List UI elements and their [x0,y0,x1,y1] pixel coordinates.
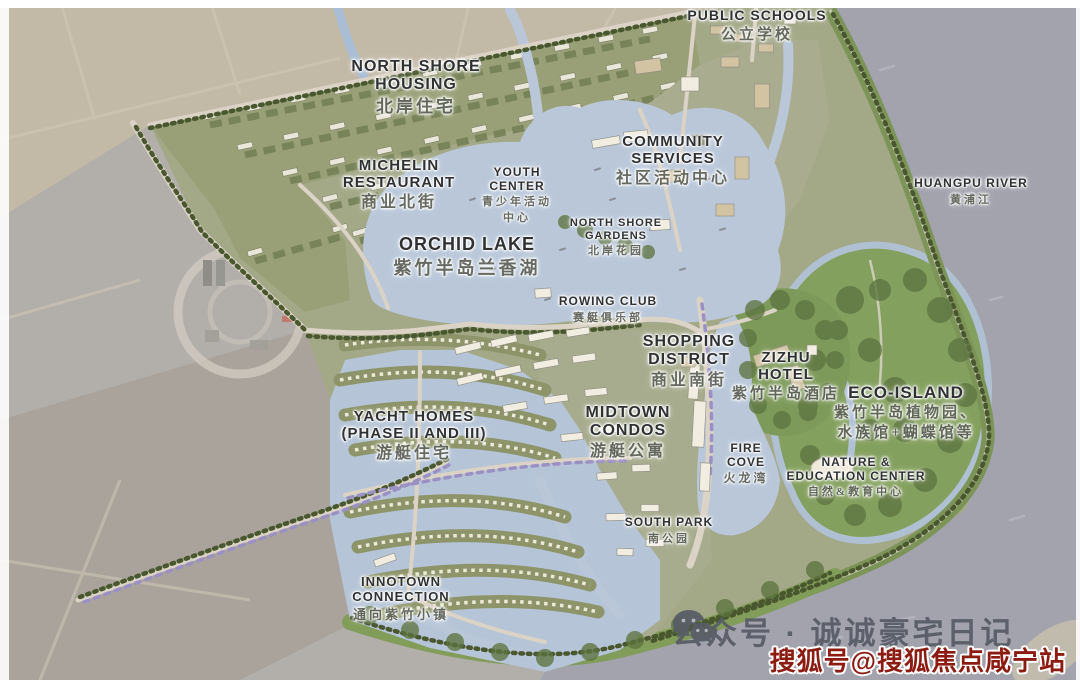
map-artwork [0,0,1080,680]
nature-center-building [811,457,853,479]
wechat-icon [672,608,718,648]
masterplan-map: PUBLIC SCHOOLS公立学校NORTH SHOREHOUSING北岸住宅… [0,0,1080,680]
sohu-watermark: 搜狐号@搜狐焦点咸宁站 [770,641,1066,678]
